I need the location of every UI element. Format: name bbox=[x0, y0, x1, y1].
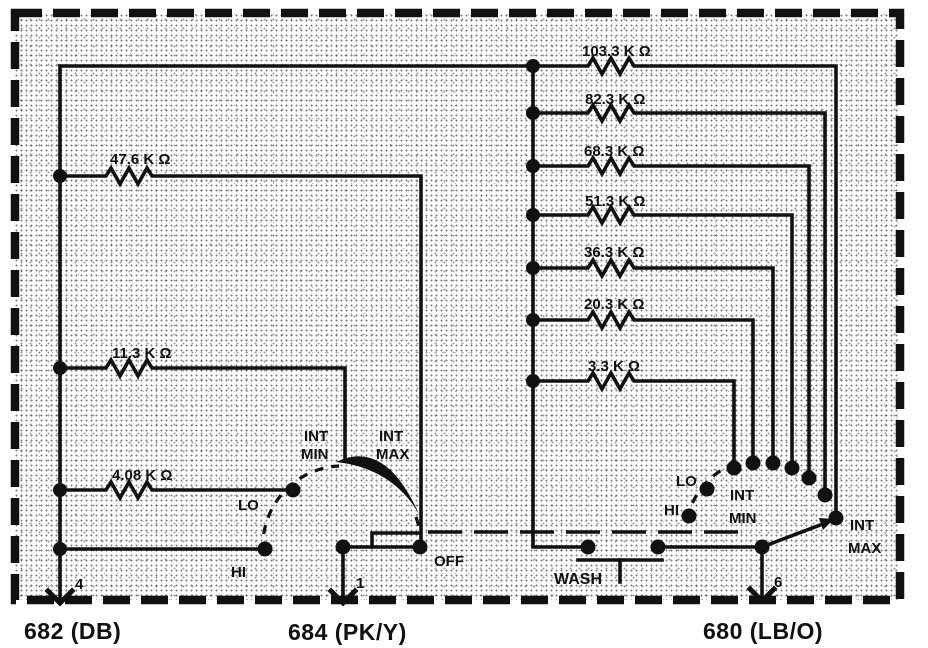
junction-dot bbox=[53, 169, 67, 183]
wash-contact-dot bbox=[581, 540, 596, 555]
junction-dot bbox=[526, 106, 540, 120]
junction-dot bbox=[53, 361, 67, 375]
resistor-value-label: 47.6 K Ω bbox=[110, 151, 170, 168]
contact-hi bbox=[682, 509, 697, 524]
contact-hi bbox=[258, 542, 273, 557]
position-label-lo: LO bbox=[238, 497, 259, 514]
right-bus-wire bbox=[533, 66, 588, 547]
junction-dot bbox=[526, 374, 540, 388]
resistor-36-3k bbox=[533, 260, 773, 463]
position-label-off: OFF bbox=[434, 553, 464, 570]
junction-dot bbox=[53, 483, 67, 497]
position-label-int-min: MIN bbox=[729, 510, 757, 527]
resistor-4-08k bbox=[60, 482, 293, 498]
terminal-6: 6 680 (LB/O) bbox=[703, 547, 823, 644]
component-boundary bbox=[15, 13, 900, 600]
resistor-value-label: 36.3 K Ω bbox=[584, 244, 644, 261]
position-label-int-max: MAX bbox=[376, 446, 409, 463]
connector-label: 684 (PK/Y) bbox=[288, 619, 407, 645]
position-label-int-max: MAX bbox=[848, 540, 881, 557]
junction-dot bbox=[526, 261, 540, 275]
position-label-hi: HI bbox=[231, 564, 246, 581]
wiper-switch-schematic: 47.6 K Ω 11.3 K Ω 4.08 K Ω 103.3 K Ω 82.… bbox=[0, 0, 928, 648]
wiper-blade bbox=[336, 456, 419, 514]
left-switch: INT MIN INT MAX LO HI OFF bbox=[231, 428, 464, 581]
resistor-value-label: 4.08 K Ω bbox=[112, 467, 172, 484]
park-contact-box bbox=[372, 533, 420, 547]
contact-off bbox=[413, 540, 428, 555]
wiper-arm bbox=[762, 524, 823, 547]
resistor-value-label: 82.3 K Ω bbox=[585, 91, 645, 108]
wash-contact-dot bbox=[651, 540, 666, 555]
contact-int-step bbox=[727, 461, 742, 476]
resistor-68-3k bbox=[533, 158, 809, 478]
junction-dot bbox=[526, 313, 540, 327]
resistor-value-label: 68.3 K Ω bbox=[584, 143, 644, 160]
pin-number: 4 bbox=[75, 576, 84, 593]
resistor-82-3k bbox=[533, 105, 825, 495]
contact-int-step bbox=[766, 456, 781, 471]
position-label-int-max: INT bbox=[379, 428, 403, 445]
contact-lo bbox=[700, 482, 715, 497]
position-label-int-min: MIN bbox=[301, 446, 329, 463]
junction-dot bbox=[526, 59, 540, 73]
resistor-3-3k bbox=[533, 373, 734, 468]
right-switch: LO HI INT MIN INT MAX WASH bbox=[554, 456, 881, 589]
resistor-value-label: 11.3 K Ω bbox=[112, 345, 172, 362]
resistor-value-label: 51.3 K Ω bbox=[585, 193, 645, 210]
position-label-lo: LO bbox=[676, 473, 697, 490]
pin-number: 1 bbox=[356, 575, 364, 592]
resistor-value-label: 3.3 K Ω bbox=[588, 358, 640, 375]
pin-number: 6 bbox=[774, 574, 782, 591]
junction-dot bbox=[526, 159, 540, 173]
contact-int-max bbox=[829, 511, 844, 526]
contact-int-step bbox=[746, 456, 761, 471]
contact-lo bbox=[286, 483, 301, 498]
resistor-value-label: 20.3 K Ω bbox=[584, 296, 644, 313]
position-label-int-min: INT bbox=[730, 487, 754, 504]
wash-label: WASH bbox=[554, 571, 602, 588]
resistor-20-3k bbox=[533, 312, 753, 463]
connector-label: 682 (DB) bbox=[24, 618, 121, 644]
position-label-int-min: INT bbox=[304, 428, 328, 445]
junction-dot bbox=[526, 208, 540, 222]
contact-int-step bbox=[802, 471, 817, 486]
contact-int-step bbox=[818, 488, 833, 503]
position-label-hi: HI bbox=[664, 502, 679, 519]
contact-int-step bbox=[785, 461, 800, 476]
wiper-travel-arc bbox=[263, 466, 339, 551]
position-label-int-max: INT bbox=[850, 517, 874, 534]
connector-label: 680 (LB/O) bbox=[703, 618, 823, 644]
schematic-svg: 47.6 K Ω 11.3 K Ω 4.08 K Ω 103.3 K Ω 82.… bbox=[0, 0, 928, 648]
resistor-value-label: 103.3 K Ω bbox=[582, 43, 651, 60]
